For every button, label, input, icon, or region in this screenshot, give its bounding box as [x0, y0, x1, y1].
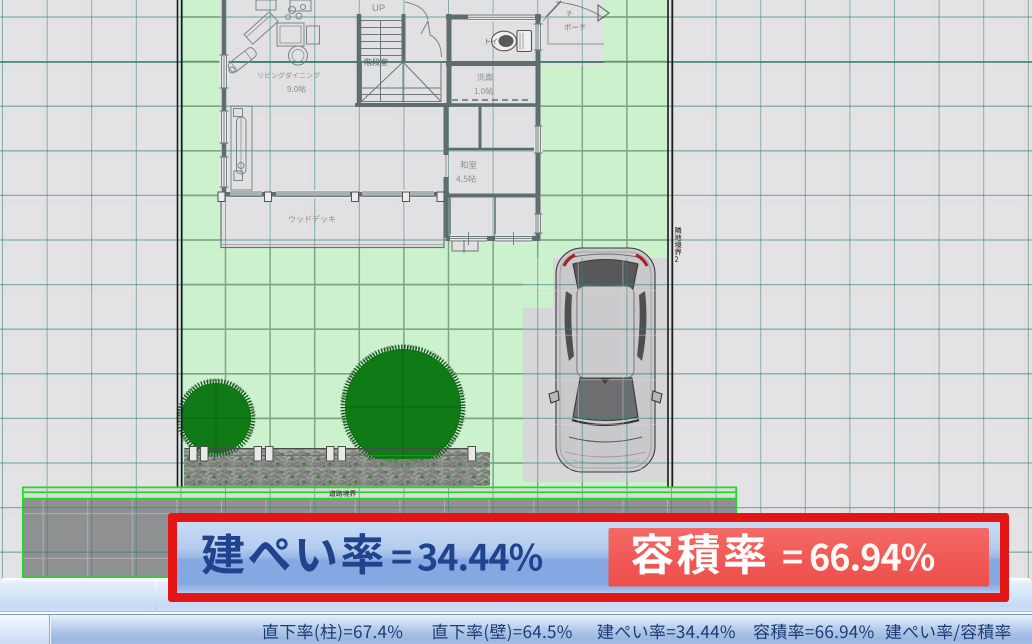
svg-text:UP: UP [372, 3, 385, 14]
